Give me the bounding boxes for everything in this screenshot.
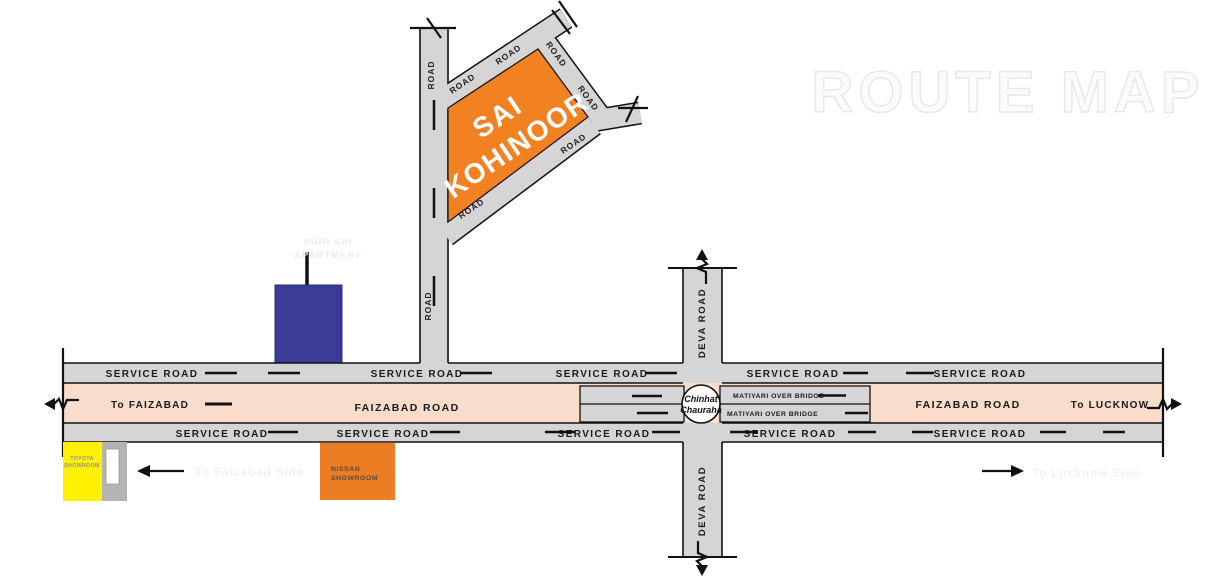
matiyari-bridge-label: MATIYARI OVER BRIDGE <box>733 393 824 400</box>
matiyari-bridge-west <box>580 386 684 422</box>
faint-direction-west-label: To Faizabad Side <box>195 467 304 479</box>
faizabad-road-label: FAIZABAD ROAD <box>915 399 1020 411</box>
to-faizabad-label: To FAIZABAD <box>111 400 189 411</box>
to-lucknow-label: To LUCKNOW <box>1071 400 1149 411</box>
route-map-canvas: ROUTE MAP DEVA ROAD DEVA ROAD <box>0 0 1221 581</box>
deva-road-label-bottom: DEVA ROAD <box>697 466 708 536</box>
road-label: ROAD <box>426 60 436 89</box>
service-road-label: SERVICE ROAD <box>106 369 199 380</box>
matiyari-bridge-label: MATIYARI OVER BRIDGE <box>727 411 818 418</box>
service-road-label: SERVICE ROAD <box>744 429 837 440</box>
nissan-showroom: NISSAN SHOWROOM <box>320 443 395 500</box>
toyota-label-line1: TOYOTA <box>70 456 94 462</box>
toyota-showroom: TOYOTA SHOWROOM <box>63 442 127 501</box>
faizabad-road-label: FAIZABAD ROAD <box>354 402 459 414</box>
chinhat-label-line1: Chinhat <box>684 394 718 404</box>
faint-direction-east-label: To Lucknow Side <box>1032 468 1141 480</box>
matiyari-bridge-east: MATIYARI OVER BRIDGE MATIYARI OVER BRIDG… <box>720 386 870 422</box>
blue-building: SHRI SAI APARTMENT <box>275 237 362 365</box>
faint-building-label-line2: APARTMENT <box>294 250 362 261</box>
direction-west: To Faizabad Side <box>137 465 304 479</box>
service-road-label: SERVICE ROAD <box>337 429 430 440</box>
direction-east: To Lucknow Side <box>982 465 1141 480</box>
chinhat-chauraha: Chinhat Chauraha <box>680 385 722 423</box>
service-road-label: SERVICE ROAD <box>934 369 1027 380</box>
nissan-label-line1: NISSAN <box>331 466 360 473</box>
nissan-label-line2: SHOWROOM <box>331 475 378 482</box>
service-road-label: SERVICE ROAD <box>558 429 651 440</box>
service-road-label: SERVICE ROAD <box>934 429 1027 440</box>
deva-road-label-top: DEVA ROAD <box>697 288 708 358</box>
watermark-title: ROUTE MAP <box>812 60 1205 125</box>
service-road-label: SERVICE ROAD <box>556 369 649 380</box>
service-road-label: SERVICE ROAD <box>747 369 840 380</box>
chinhat-label-line2: Chauraha <box>680 405 722 415</box>
service-road-label: SERVICE ROAD <box>176 429 269 440</box>
service-road-label: SERVICE ROAD <box>371 369 464 380</box>
toyota-label-line2: SHOWROOM <box>64 463 99 469</box>
faint-building-label-line1: SHRI SAI <box>303 237 352 248</box>
route-map: ROUTE MAP DEVA ROAD DEVA ROAD <box>0 0 1221 581</box>
road-label: ROAD <box>423 291 433 320</box>
